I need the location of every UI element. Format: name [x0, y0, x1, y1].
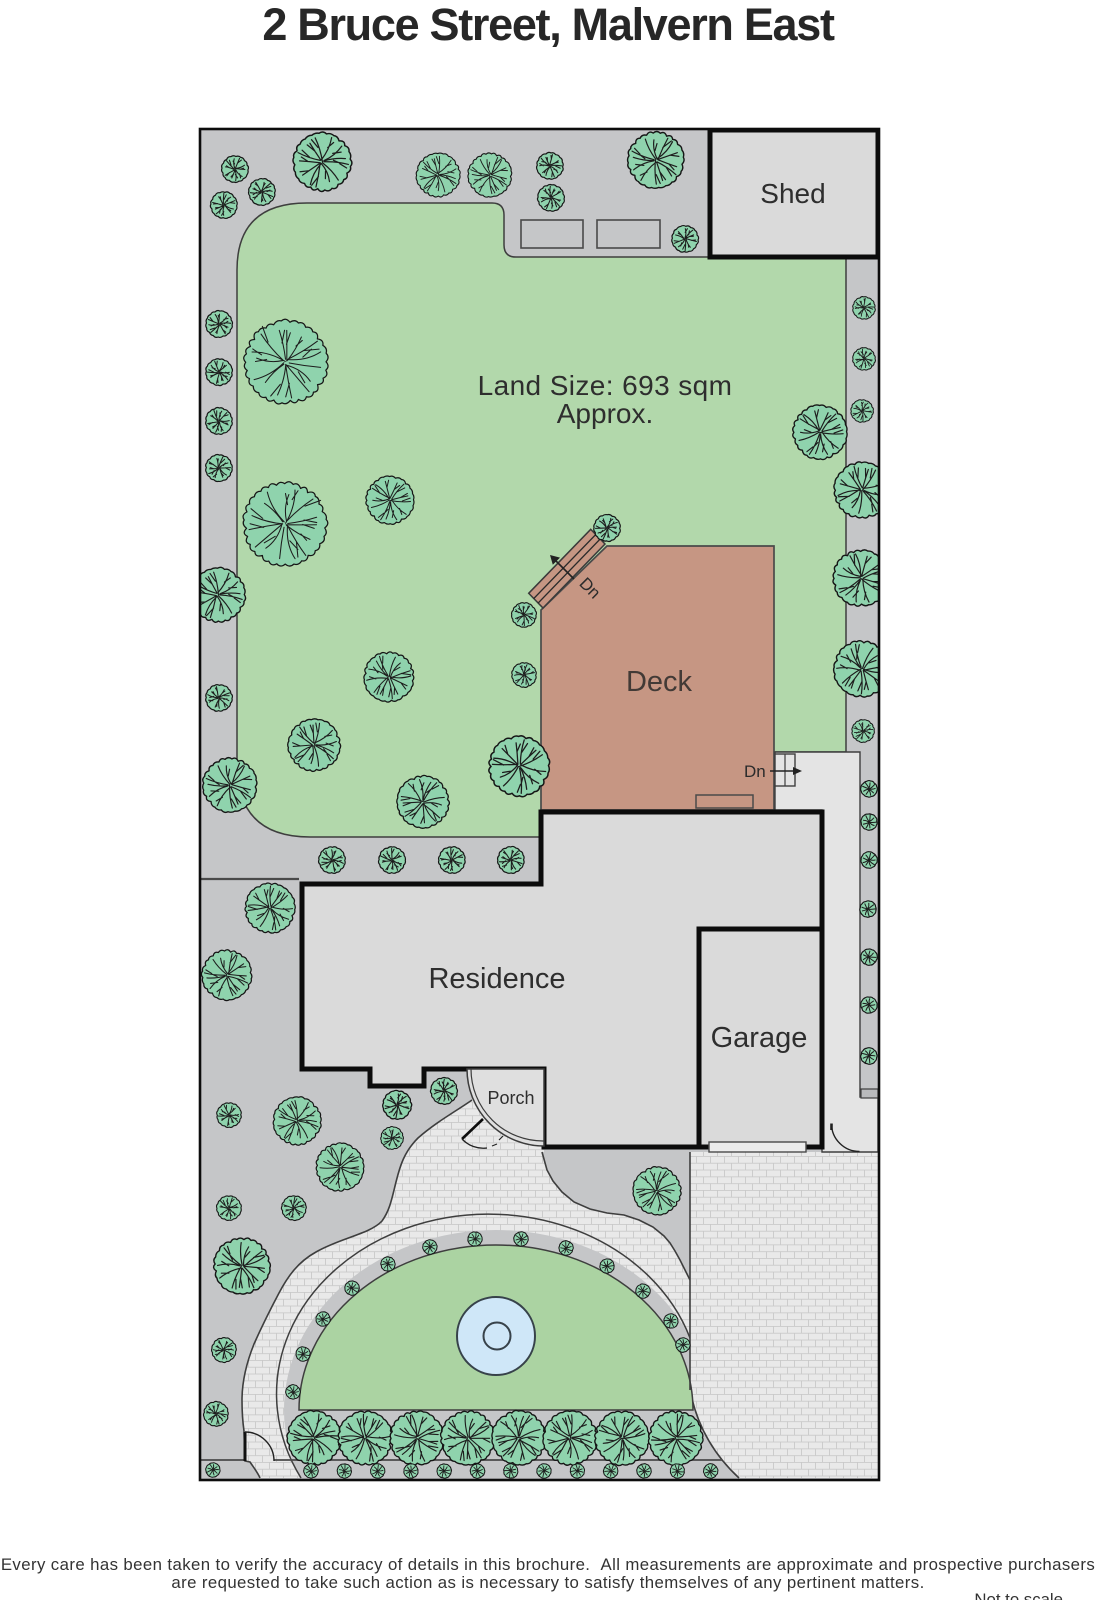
- svg-text:Every care has been taken to v: Every care has been taken to verify the …: [1, 1555, 1095, 1574]
- svg-text:Porch: Porch: [487, 1088, 534, 1108]
- svg-text:Land Size: 693 sqm: Land Size: 693 sqm: [478, 370, 733, 401]
- svg-text:Residence: Residence: [428, 963, 565, 995]
- svg-text:Shed: Shed: [760, 178, 825, 209]
- svg-text:Garage: Garage: [711, 1022, 808, 1054]
- svg-text:are requested to take such act: are requested to take such action as is …: [171, 1573, 924, 1592]
- svg-text:Not to scale: Not to scale: [974, 1590, 1063, 1600]
- svg-text:Approx.: Approx.: [557, 398, 654, 429]
- svg-text:2 Bruce Street, Malvern East: 2 Bruce Street, Malvern East: [262, 0, 835, 50]
- svg-text:Deck: Deck: [626, 666, 693, 698]
- svg-text:Dn: Dn: [744, 762, 766, 781]
